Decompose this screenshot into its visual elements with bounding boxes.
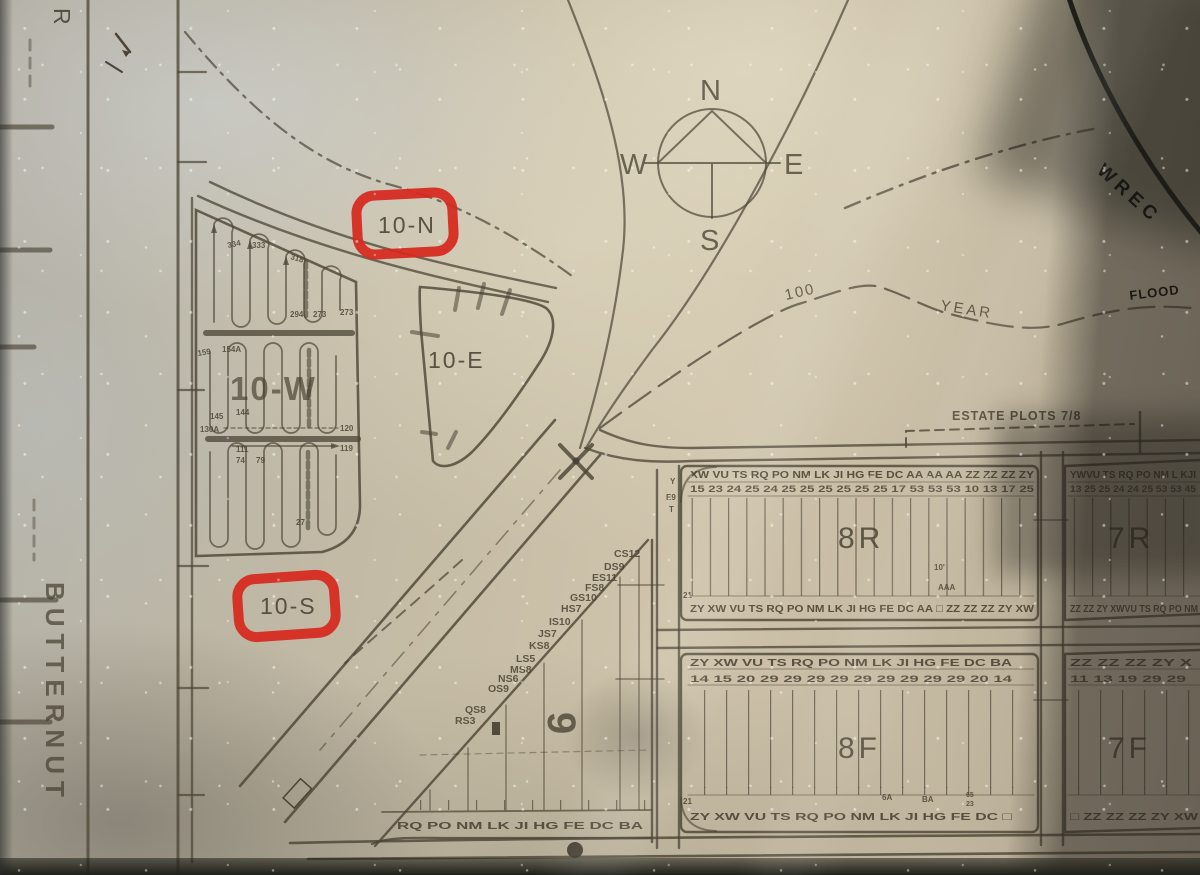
section-8r-label: 8R [838,522,884,555]
plot-number: 154A [222,345,241,354]
section-7f-label: 7F [1108,732,1151,765]
edge-plot-label: JS7 [538,628,557,640]
section-10s-label: 10-S [260,593,317,619]
section-7r-label: 7R [1108,522,1154,555]
section-8r-bottom-letters: ZY XW VU TS RQ PO NM LK JI HG FE DC AA □… [690,603,1034,615]
section-7f-bottom-letters: □ ZZ ZZ ZZ ZY XW [1070,811,1198,823]
edge-plot-label: HS7 [561,603,582,615]
section-9-label: 9 [539,712,583,734]
flood-100-label: 100 [783,280,817,304]
plot-number: 334 [227,238,242,250]
plot-number: 130A [200,425,219,434]
top-left-arrow [106,34,130,72]
edge-plot-label: KS8 [529,640,550,652]
section-7f-top-numbers: 11 13 19 29 29 [1070,674,1186,685]
section-8r-left-mark: Y [670,477,676,486]
compass-west-label: W [620,149,648,181]
main-diagonal-road [240,420,600,822]
section-7f-left-mark: 65 [966,792,974,799]
section-10e-outline [412,284,553,466]
section-8f-mark-21: 21 [683,797,692,806]
map-drawing: BUTTERNUT R 10-W 334 333 318 294 [0,0,1200,875]
section-9-edge-plot-labels: CS12 DS9 ES11 FS8 GS10 HS7 IS10 JS7 KS8 … [455,548,640,727]
street-name-butternut: BUTTERNUT [40,582,70,804]
section-7r-bottom-letters: ZZ ZZ ZY XWVU TS RQ PO NM [1070,603,1198,615]
section-8r-mark-10ft: 10' [934,563,945,572]
section-8r-left-mark: E9 [666,493,676,502]
edge-plot-label: IS10 [549,616,571,628]
plot-number: 144 [236,408,250,417]
section-8f-top-numbers: 14 15 20 29 29 29 29 29 29 29 29 29 20 1… [690,674,1013,685]
section-8f-mark-ba: BA [922,795,934,804]
section-8r-top-letters: XW VU TS RQ PO NM LK JI HG FE DC AA AA A… [690,469,1034,481]
section-8r-top-numbers: 15 23 24 25 24 25 25 25 25 25 25 17 53 5… [690,484,1035,495]
section-8r-mark-aaa: AAA [938,583,956,592]
section-8f-label: 8F [838,732,881,765]
plot-number: 273 [340,308,354,317]
section-10w-label: 10-W [230,370,317,407]
section-7r-top-numbers: 13 25 25 24 24 25 53 53 45 [1070,484,1197,495]
plot-number: 120 [340,424,354,433]
plot-number: 145 [210,412,224,421]
flood-word-label: FLOOD [1129,282,1181,303]
plot-number: 79 [256,456,265,465]
estate-plots-label: ESTATE PLOTS 7/8 [952,409,1081,423]
plot-number: 111 [236,445,249,454]
plot-number: 119 [340,444,353,453]
street-name-fragment-r: R [49,8,75,27]
plot-number: 333 [252,241,266,250]
edge-plot-label: CS12 [614,548,640,560]
section-7r-top-letters: YWVU TS RQ PO NM L KJI [1070,469,1196,481]
section-9-outline [372,540,664,846]
section-9-bottom-row: RQ PO NM LK JI HG FE DC BA [397,820,644,832]
plot-number: 273 [313,310,327,319]
compass-rose [645,109,780,218]
section-10n-label: 10-N [378,212,436,238]
compass-south-label: S [700,225,719,257]
compass-north-label: N [700,75,721,107]
section-8f-bottom-letters: ZY XW VU TS RQ PO NM LK JI HG FE DC □ [690,811,1013,823]
butternut-street-lines [0,0,208,875]
plot-number: 294 [290,310,304,319]
map-photo: BUTTERNUT R 10-W 334 333 318 294 [0,0,1200,875]
section-8f-top-letters: ZY XW VU TS RQ PO NM LK JI HG FE DC BA [690,657,1013,669]
compass-east-label: E [784,149,803,181]
plot-number: 27 [296,518,305,527]
section-7f-left-mark: 23 [966,801,974,808]
section-7f-top-letters: ZZ ZZ ZZ ZY X [1070,657,1192,669]
section-8r-left-mark: T [669,505,674,514]
section-8r-mark-21: 21 [683,591,692,600]
section-8f-mark-6a: 6A [882,793,892,802]
section-10e-label: 10-E [428,347,485,373]
edge-plot-label: RS3 [455,715,476,727]
plot-number: 74 [236,456,245,465]
edge-plot-label: OS9 [488,683,509,695]
